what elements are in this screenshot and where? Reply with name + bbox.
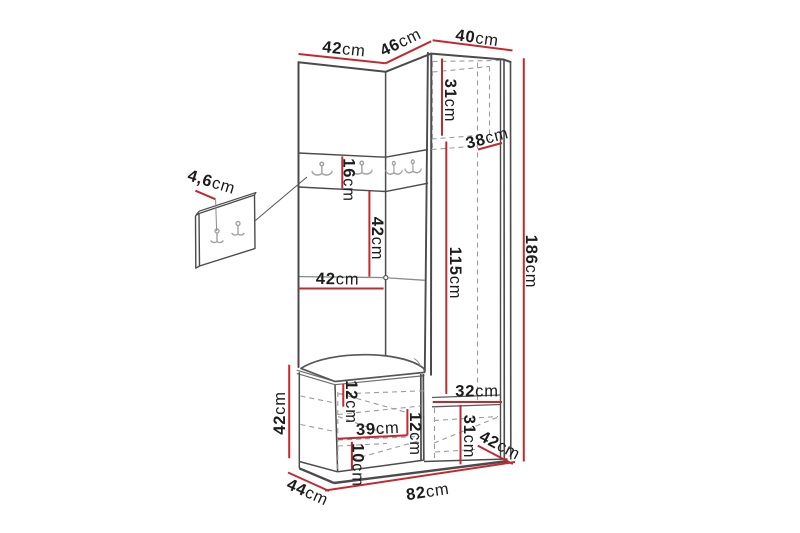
svg-text:31cm: 31cm <box>460 415 478 459</box>
svg-text:31cm: 31cm <box>441 79 459 123</box>
svg-text:39cm: 39cm <box>356 419 400 439</box>
svg-text:12cm: 12cm <box>406 412 424 456</box>
svg-text:16cm: 16cm <box>340 158 358 202</box>
svg-text:42cm: 42cm <box>271 391 289 435</box>
svg-text:42cm: 42cm <box>316 270 360 289</box>
svg-text:12cm: 12cm <box>342 380 360 424</box>
svg-text:10cm: 10cm <box>349 443 367 487</box>
svg-text:42cm: 42cm <box>368 217 386 261</box>
svg-text:186cm: 186cm <box>522 235 540 289</box>
svg-text:32cm: 32cm <box>455 383 499 401</box>
svg-text:115cm: 115cm <box>446 247 464 300</box>
